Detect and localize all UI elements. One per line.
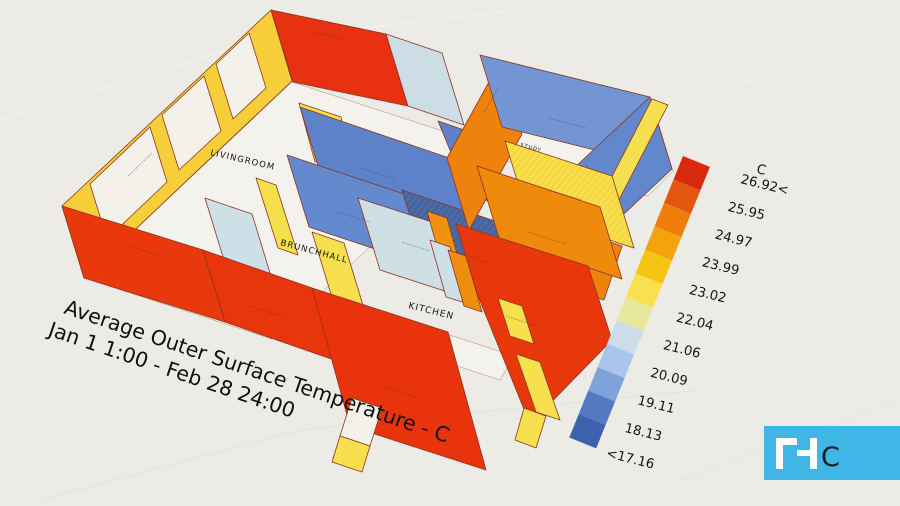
thc-logo: C (764, 426, 900, 480)
logo-letter-c: C (821, 442, 840, 473)
3d-temperature-scene: LIVINGROOM BRUNCHHALL KITCHEN STUDY C 26… (0, 0, 900, 506)
screenshot-root: LIVINGROOM BRUNCHHALL KITCHEN STUDY C 26… (0, 0, 900, 506)
